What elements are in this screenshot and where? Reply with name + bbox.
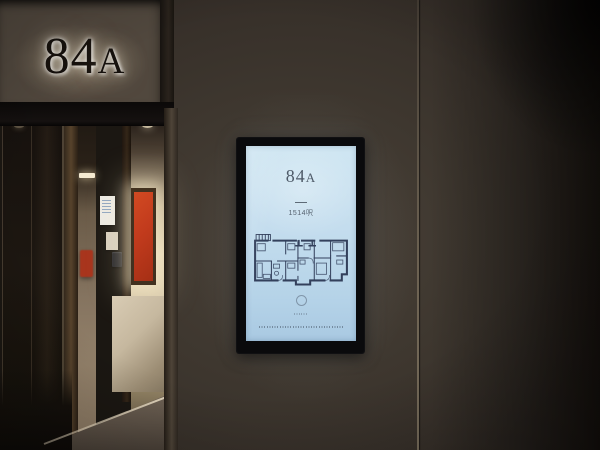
screen-unit-letter: A [306,170,316,185]
door-sign-letter: A [98,41,125,82]
floor-plan-drawing [251,229,351,289]
wall-corner-trim [164,108,178,450]
red-sofa [80,250,93,277]
interior-hallway [78,112,96,450]
hallway-ceiling-light [79,173,95,178]
kiosk-touchscreen[interactable]: 84A 1514呎 [246,146,356,341]
interior-gray-wall [96,112,124,450]
divider-rule [295,202,307,203]
logo-icon [296,295,307,306]
wall-corner-gap [160,0,174,110]
unit-door-sign: 84A [14,22,154,92]
digital-signage-kiosk: 84A 1514呎 [236,137,365,354]
light-switch[interactable] [112,252,122,267]
screen-unit-number: 84 [286,166,306,186]
disclaimer-text [259,326,343,328]
red-artwork-canvas [134,192,153,281]
logo-wordmark [294,313,308,315]
notice-printed-plan [102,200,111,213]
wall-notice-card [106,232,118,250]
unit-area-text: 1514呎 [246,208,356,218]
screen-unit-title: 84A [246,167,356,187]
developer-logo-block [246,293,356,315]
door-sign-number: 84 [44,28,98,85]
door-header-beam [0,102,174,126]
corner-shadow [470,0,600,160]
showflat-corridor-scene: 84A 84A 1514呎 [0,0,600,450]
